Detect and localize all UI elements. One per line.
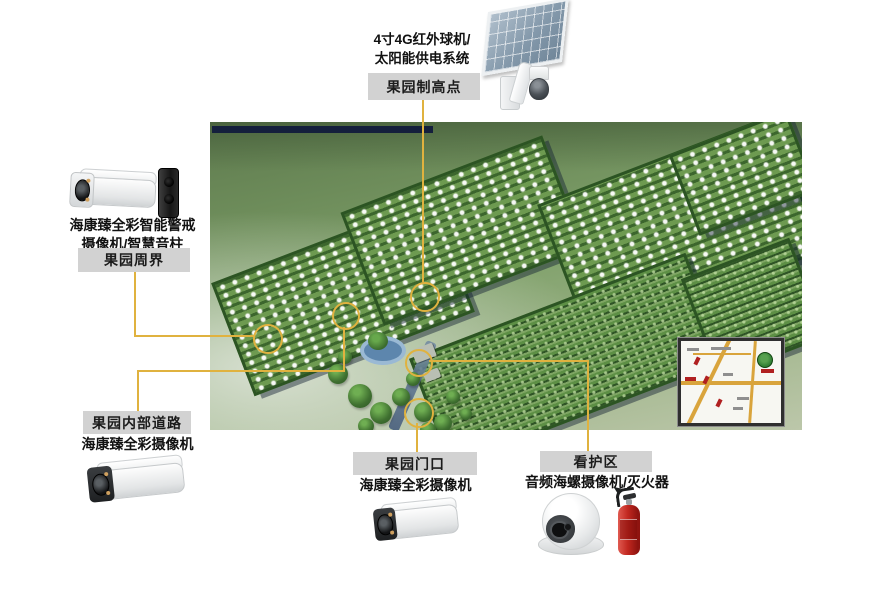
connector-highpoint [422, 100, 424, 282]
orchard-surveillance-diagram: 4寸4G红外球机/ 太阳能供电系统 果园制高点 海康臻全彩智能警戒 摄像机/智慧… [0, 0, 880, 595]
highpoint-zone-label: 果园制高点 [387, 77, 462, 97]
highpoint-device-line1: 4寸4G红外球机/ [352, 30, 492, 49]
inner-road-bullet-camera-icon [86, 450, 187, 510]
ptz-camera-ball [529, 78, 549, 100]
gate-bullet-camera-icon [372, 493, 460, 549]
map-site-tree-icon [757, 352, 773, 368]
camera-led [388, 512, 392, 516]
map-route-marker [693, 357, 700, 366]
inner-road-zone-box: 果园内部道路 [83, 411, 191, 434]
turret-camera-icon [538, 493, 602, 555]
tree-cluster [328, 364, 348, 384]
map-text-placeholder [737, 397, 749, 400]
care-device-text: 音频海螺摄像机/灭火器 [518, 473, 676, 492]
map-text-placeholder [723, 373, 733, 376]
connector-road-v1 [137, 370, 139, 412]
tree-cluster [370, 402, 392, 424]
tree-cluster [446, 390, 460, 404]
care-zone-label: 看护区 [574, 452, 619, 472]
extinguisher-body [618, 505, 639, 555]
map-text-placeholder [711, 347, 731, 350]
fire-extinguisher-icon [615, 487, 643, 555]
map-text-placeholder [733, 407, 743, 410]
camera-front [373, 507, 398, 542]
orchard-aerial-view [210, 122, 802, 430]
smart-speaker-column-icon [158, 168, 179, 218]
map-route-marker [715, 399, 722, 408]
speaker-port [164, 194, 174, 204]
marker-perimeter [253, 324, 283, 354]
field-edge-bar [212, 126, 433, 133]
perimeter-zone-box: 果园周界 [78, 248, 190, 272]
tree-cluster [460, 408, 472, 420]
connector-care-h [429, 360, 589, 362]
marker-road [332, 302, 360, 330]
tree-cluster [338, 350, 352, 364]
camera-led [87, 179, 91, 183]
tree-cluster [348, 384, 372, 408]
highpoint-device-line2: 太阳能供电系统 [352, 49, 492, 68]
marker-gate [404, 398, 434, 428]
inner-road-zone-label: 果园内部道路 [92, 413, 182, 433]
perimeter-bullet-camera-icon [69, 164, 157, 216]
camera-body [386, 504, 459, 540]
turret-face [546, 515, 575, 542]
solar-panel-ptz-camera-icon [476, 4, 576, 114]
connector-care-v [587, 360, 589, 451]
gate-device-label: 海康臻全彩摄像机 [358, 476, 473, 495]
connector-road-v2 [343, 327, 345, 371]
location-map-inset [678, 338, 784, 426]
map-road-top [693, 353, 751, 355]
connector-road-h [137, 370, 345, 372]
camera-led [390, 531, 394, 535]
camera-led [107, 491, 111, 495]
map-road-horizontal [681, 381, 781, 385]
camera-front [69, 171, 95, 208]
marker-care [405, 349, 433, 377]
gate-zone-box: 果园门口 [353, 452, 477, 475]
camera-front [86, 466, 114, 503]
perimeter-device-line1: 海康臻全彩智能警戒 [55, 216, 210, 235]
highpoint-device-text: 4寸4G红外球机/ 太阳能供电系统 [352, 30, 492, 68]
gate-device-text: 海康臻全彩摄像机 [358, 476, 473, 495]
extinguisher-label [620, 519, 637, 540]
care-zone-box: 看护区 [540, 451, 652, 472]
map-text-placeholder [687, 348, 699, 351]
speaker-port [164, 177, 174, 187]
gate-zone-label: 果园门口 [385, 454, 445, 474]
turret-mic-hole [564, 523, 572, 531]
connector-perimeter-v [134, 272, 136, 336]
camera-led [86, 197, 90, 201]
camera-led [104, 471, 108, 475]
perimeter-zone-label: 果园周界 [104, 250, 164, 270]
connector-perimeter-h [134, 335, 254, 337]
highpoint-zone-box: 果园制高点 [368, 73, 480, 100]
marker-highpoint [410, 282, 440, 312]
map-red-label [685, 377, 696, 381]
care-device-label: 音频海螺摄像机/灭火器 [518, 473, 676, 492]
tree-cluster [434, 414, 452, 430]
map-red-label [761, 369, 774, 373]
tree-cluster [358, 418, 374, 430]
pond-island-tree [368, 332, 388, 350]
extinguisher-valve [626, 499, 632, 505]
